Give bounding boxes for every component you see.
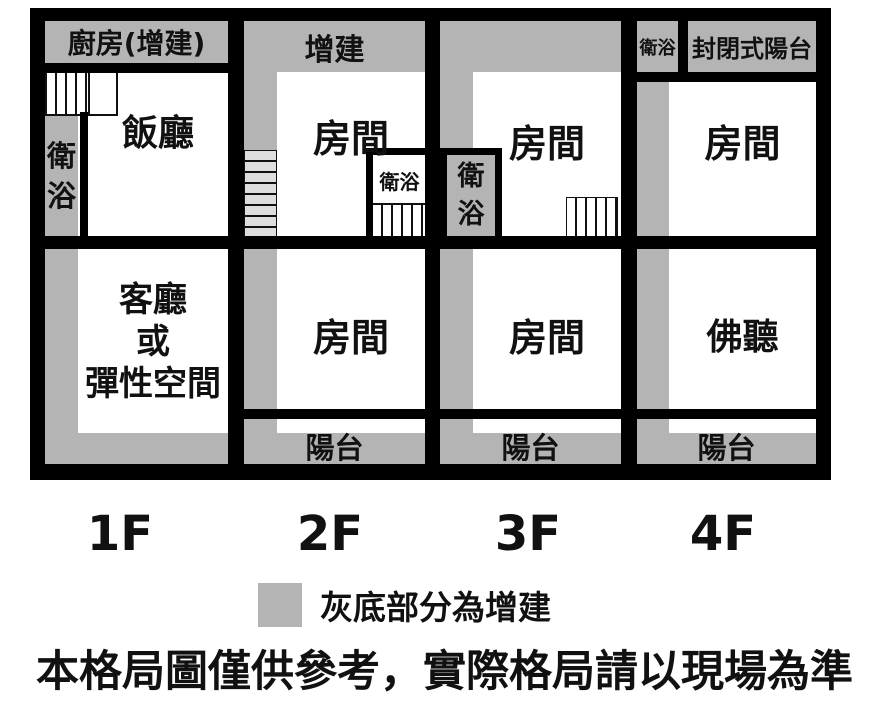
addition-strip-bottom-1f [45, 433, 228, 464]
room-upper-label-2f: 房間 [277, 100, 425, 170]
legend-swatch [258, 583, 302, 627]
stairs-2f-bath [373, 203, 426, 236]
balcony-label-3f: 陽台 [440, 429, 621, 462]
floor-plan-page: 廚房(增建) 衛 浴 增建 衛浴 封閉式陽台 衛浴 衛 浴 [0, 0, 889, 706]
balcony-label-2f: 陽台 [244, 429, 425, 462]
room-lower-label-2f: 房間 [277, 299, 425, 369]
room-upper-label-4f: 房間 [669, 105, 816, 175]
addition-strip-left-1f [45, 249, 78, 464]
bath-label-1f: 衛 浴 [45, 130, 78, 222]
wall-balcony-2f [244, 409, 425, 419]
wall-top-band-4f [637, 72, 816, 82]
living-label-1f: 客廳 或 彈性空間 [78, 278, 228, 406]
wall-bath-enclosed-4f [678, 21, 688, 82]
floor-label-1f: 1F [70, 505, 170, 563]
legend-text: 灰底部分為增建 [320, 583, 580, 627]
wall-balcony-3f [440, 409, 621, 419]
wall-bath-dining-1f [80, 112, 88, 238]
addition-strip-left-3f [440, 72, 473, 464]
floor-label-2f: 2F [280, 505, 380, 563]
buddha-hall-label-4f: 佛聽 [669, 299, 816, 369]
addition-band-2f: 增建 [244, 21, 425, 72]
stairs-3f [566, 197, 618, 237]
stairs-treads-1f [47, 73, 90, 114]
addition-strip-left-4f [637, 82, 669, 464]
kitchen-label-1f: 廚房(增建) [68, 22, 206, 62]
room-lower-label-3f: 房間 [473, 299, 621, 369]
floor-label-3f: 3F [478, 505, 578, 563]
balcony-label-4f: 陽台 [637, 429, 816, 462]
bath-label-4f: 衛浴 [640, 34, 676, 60]
enclosed-balcony-label-4f: 封閉式陽台 [692, 29, 812, 64]
wall-balcony-4f [637, 409, 816, 419]
disclaimer-text: 本格局圖僅供參考，實際格局請以現場為準 [0, 640, 889, 696]
addition-strip-left-2f [244, 72, 277, 464]
enclosed-balcony-area-4f: 封閉式陽台 [688, 21, 816, 72]
room-upper-label-3f: 房間 [473, 105, 621, 175]
wall-middle [30, 236, 831, 249]
dining-label-1f: 飯廳 [88, 95, 228, 165]
bath-area-4f: 衛浴 [637, 21, 678, 72]
kitchen-area-1f: 廚房(增建) [45, 21, 228, 63]
addition-band-3f [440, 21, 621, 72]
floor-label-4f: 4F [673, 505, 773, 563]
wall-kitchen-1f [45, 63, 228, 73]
addition-label-2f: 增建 [305, 25, 365, 69]
stairs-2f [244, 150, 277, 239]
